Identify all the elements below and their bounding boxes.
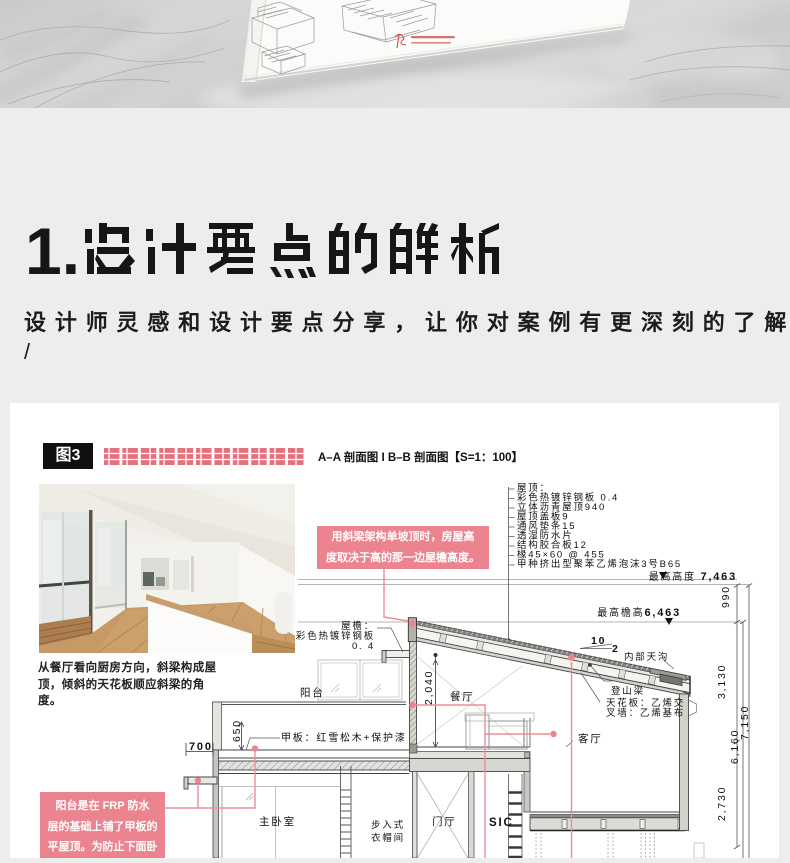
svg-text:1.: 1. (25, 220, 80, 280)
